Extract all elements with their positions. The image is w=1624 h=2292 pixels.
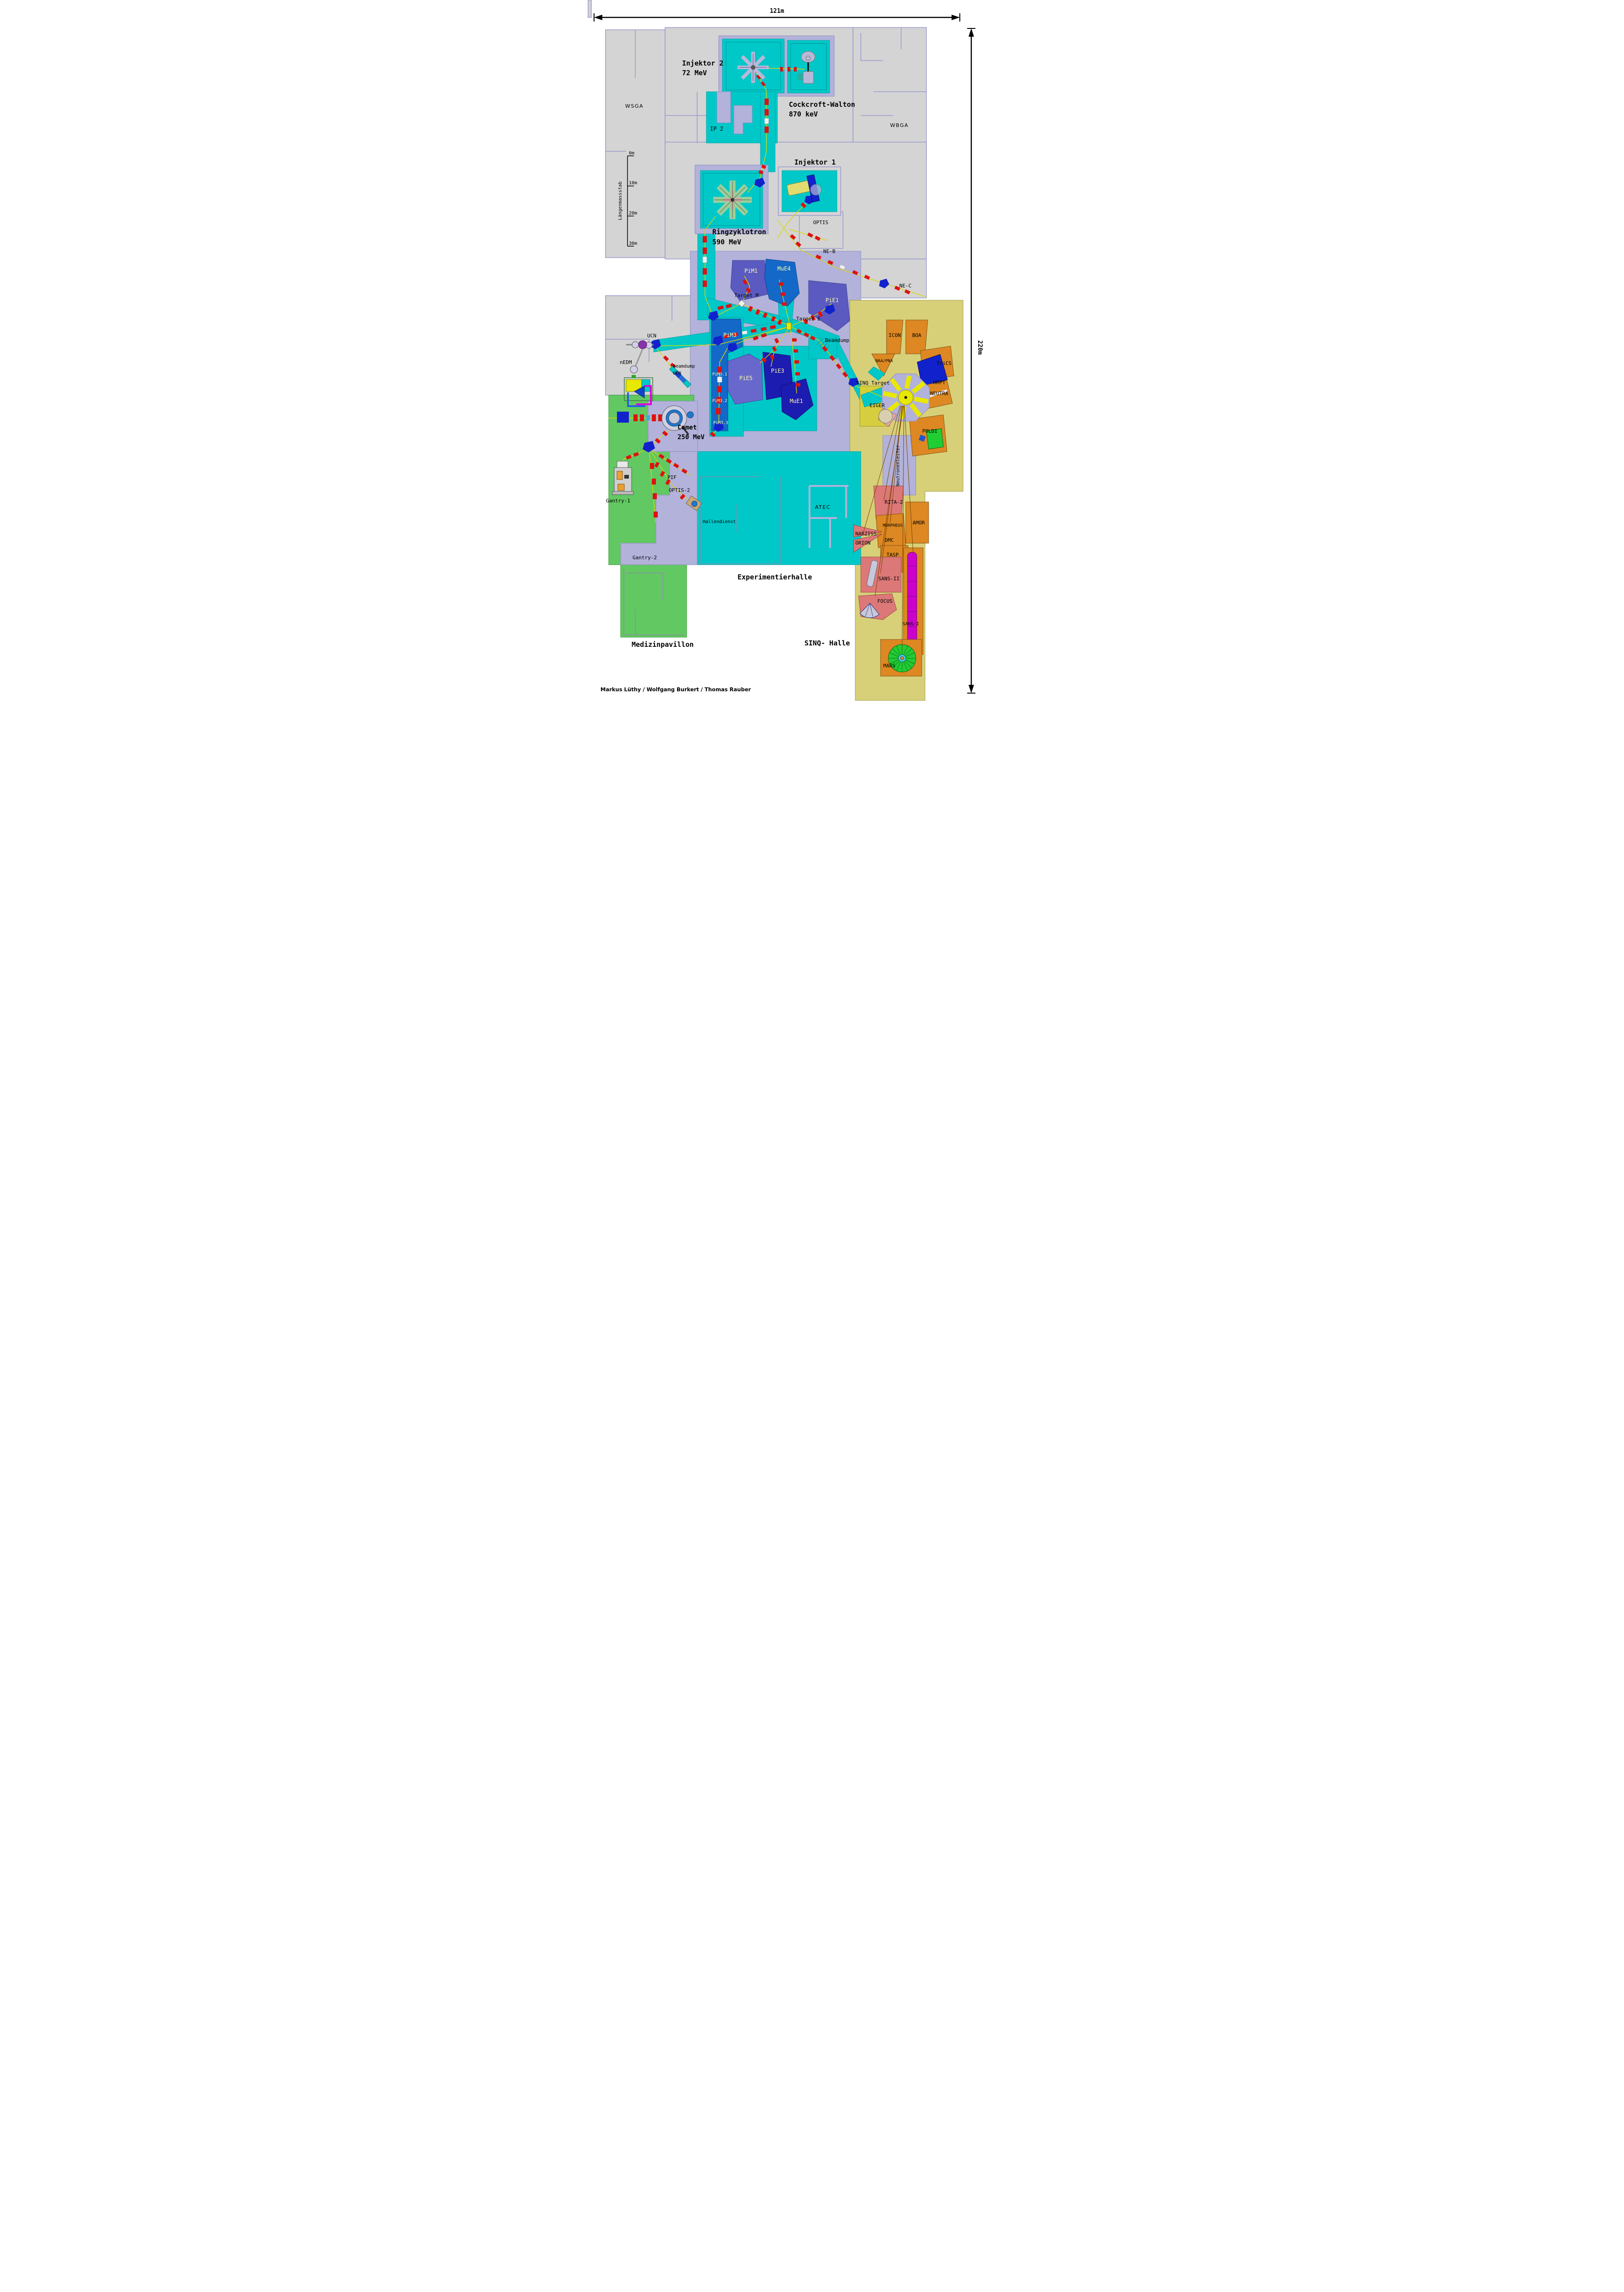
- amor-label: AMOR: [913, 520, 925, 526]
- eiger-table-icon: [879, 409, 892, 423]
- poldi-label: POLDI: [922, 428, 937, 434]
- neutronenleiter-label: Neutronenleiter: [896, 445, 901, 486]
- hall-service-zone: [695, 452, 861, 565]
- horizontal-scale-bar: 121m: [594, 8, 960, 22]
- boa-label: BOA: [912, 332, 921, 338]
- neutra-label: NEUTRA: [930, 391, 948, 397]
- optis2-label: OPTIS-2: [669, 487, 690, 493]
- facility-map: 121m 220m: [580, 0, 1044, 720]
- mue4-label: MuE4: [777, 265, 791, 272]
- hallendienst-label: Hallendienst: [703, 519, 736, 524]
- gantry2-label: Gantry-2: [633, 555, 657, 561]
- cockcroft-label: Cockcroft-Walton: [789, 100, 855, 109]
- optis-label: OPTIS: [813, 220, 828, 226]
- beamdump-ucn-label-1: Beamdump: [673, 364, 695, 369]
- pim3-label: PiM3: [723, 332, 737, 338]
- hrpt-label: HRPT: [933, 380, 946, 386]
- pim31-label: PiM3.1: [712, 372, 727, 377]
- trics-label: TriCS: [936, 360, 952, 366]
- pie3-label: PiE3: [771, 368, 784, 374]
- comet-extraction-magnet-icon: [617, 412, 629, 423]
- injektor2-energy-label: 72 MeV: [682, 69, 707, 77]
- atec-label: ATEC: [815, 504, 831, 510]
- tasp-label: TASP: [886, 552, 899, 558]
- injektor1-label: Injektor 1: [794, 158, 836, 166]
- eiger-label: EIGER: [870, 402, 885, 408]
- focus-label: FOCUS: [877, 598, 892, 604]
- ne-b-label: NE-B: [823, 248, 836, 254]
- building-wbga: [853, 28, 926, 158]
- ringzyklotron-label: Ringzyklotron: [712, 228, 766, 236]
- pim32-label: PiM3.2: [712, 399, 727, 403]
- sans2-label: SANS-II: [878, 576, 899, 582]
- dmc-label: DMC: [885, 537, 894, 543]
- morpheus-label: MORPHEUS: [883, 523, 903, 528]
- wbga-label: WBGA: [890, 122, 908, 128]
- pie5-label: PiE5: [739, 375, 753, 381]
- sinq-halle-label: SINQ- Halle: [804, 639, 850, 647]
- medizinpavillon-label: Medizinpavillon: [632, 640, 694, 649]
- ringzyklotron-energy-label: 590 MeV: [712, 238, 741, 246]
- icon-label: ICON: [888, 332, 901, 338]
- width-scale-label: 121m: [770, 8, 784, 15]
- pie1-label: PiE1: [826, 297, 839, 303]
- pim1-label: PiM1: [744, 268, 758, 274]
- ruler-tick-30m: 30m: [629, 241, 637, 246]
- mue1-label: MuE1: [790, 398, 803, 404]
- injektor2-label: Injektor 2: [682, 59, 723, 67]
- arrowhead-top-icon: [969, 28, 974, 37]
- pif-label: PIF: [667, 474, 677, 480]
- naa-pna-label: NAA/PNA: [875, 359, 893, 364]
- arrowhead-right-icon: [952, 15, 960, 20]
- credits-label: Markus Lüthy / Wolfgang Burkert / Thomas…: [600, 686, 751, 693]
- facility-map-page: 121m 220m: [580, 0, 1044, 720]
- injektor2-cyclotron-icon: [738, 52, 769, 83]
- gantry1-label: Gantry-1: [606, 498, 630, 504]
- ruler-title: Längenmassstab: [618, 182, 623, 220]
- sans1-label: SANS-I: [903, 622, 919, 627]
- wsga-label: WSGA: [625, 103, 644, 109]
- block-sans2: [861, 557, 901, 592]
- beamdump-ucn-label-2: UCN: [673, 371, 681, 376]
- ruler-tick-10m: 10m: [629, 181, 637, 186]
- comet-energy-label: 250 MeV: [677, 434, 705, 441]
- target-e-icon: [787, 323, 791, 330]
- ne-c-label: NE-C: [899, 283, 912, 289]
- cockcroft-energy-label: 870 keV: [789, 110, 818, 118]
- experimentierhalle-label: Experimentierhalle: [738, 573, 812, 581]
- vertical-scale-bar: 220m: [967, 28, 983, 693]
- height-scale-label: 220m: [976, 340, 983, 354]
- ip2-label: IP 2: [710, 126, 723, 132]
- mars-label: MARS: [883, 663, 896, 669]
- orion-label: ORION: [855, 540, 870, 546]
- arrowhead-bottom-icon: [969, 685, 974, 693]
- comet-label: Comet: [677, 424, 697, 431]
- narziss-label: NARZISS: [855, 531, 876, 537]
- ip2-shield-a: [717, 92, 731, 123]
- target-e-label: Target E: [796, 316, 820, 322]
- rita2-label: RITA-2: [885, 499, 903, 505]
- ruler-tick-0m: 0m: [629, 151, 634, 156]
- beamdump-label: Beamdump: [825, 337, 849, 343]
- nedm-label: nEDM: [620, 359, 632, 365]
- target-m-label: Target M: [734, 292, 759, 298]
- sinq-target-label: SINQ Target: [856, 380, 890, 386]
- ruler-tick-20m: 20m: [629, 211, 637, 216]
- pim33-label: PiM3.3: [713, 421, 728, 425]
- ringzyklotron-icon: [713, 181, 752, 219]
- arrowhead-left-icon: [594, 15, 602, 20]
- wall-sliver: [588, 0, 591, 17]
- ucn-label: UCN: [647, 333, 656, 339]
